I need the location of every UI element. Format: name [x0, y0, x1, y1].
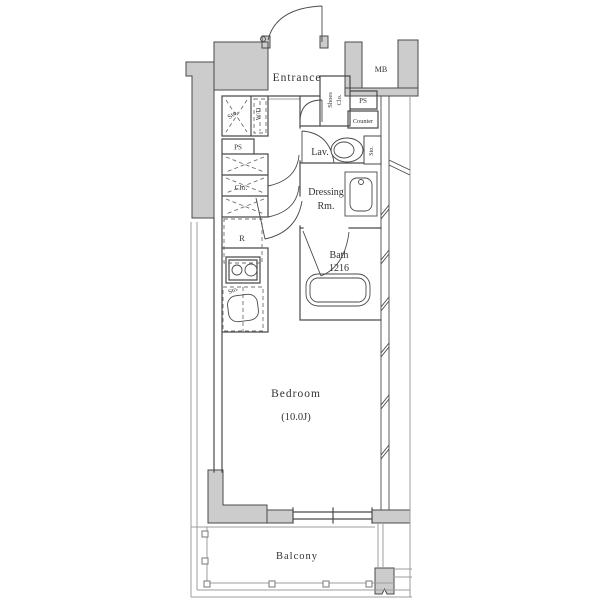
dressing-room-label-line1: Dressing	[308, 187, 344, 198]
shoes-closet-label-line2: Clo.	[336, 94, 343, 105]
bath-label: Bath	[330, 250, 349, 261]
meter-box-label: MB	[375, 65, 387, 74]
toilet-bowl	[331, 138, 363, 162]
east-wall-hatch-marks	[381, 160, 410, 459]
bedroom-size-label: (10.0J)	[281, 412, 311, 423]
stove-burner-left	[232, 265, 242, 275]
washbasin	[345, 172, 377, 216]
pipe-space-right-label: PS	[359, 97, 367, 105]
balcony-label: Balcony	[276, 551, 318, 562]
washbasin-faucet-icon	[359, 180, 364, 185]
washbasin-bowl	[350, 178, 372, 211]
bath-size-label: 1216	[329, 263, 349, 274]
structural-walls	[186, 36, 418, 594]
closet-label: Clo.	[235, 183, 248, 192]
bedroom-label: Bedroom	[271, 388, 321, 400]
refrigerator-label: R	[239, 233, 245, 243]
floor-plan-canvas: Entrance MB Sto. W/D PS Shoes Clo. PS Co…	[0, 0, 600, 600]
dressing-room-label-line2: Rm.	[318, 201, 335, 212]
pipe-space-left-label: PS	[234, 144, 242, 152]
shoes-closet-label-line1: Shoes	[327, 92, 334, 108]
washer-dryer-label: W/D	[255, 107, 262, 120]
bathtub	[306, 274, 370, 306]
storage-top-label: Sto.	[226, 108, 240, 121]
toilet-storage-label: Sto.	[369, 146, 375, 156]
stove	[232, 264, 257, 276]
counter-label: Counter	[353, 118, 374, 125]
floor-plan: Entrance MB Sto. W/D PS Shoes Clo. PS Co…	[0, 0, 600, 600]
stove-burner-right	[245, 264, 257, 276]
entrance-label: Entrance	[273, 72, 322, 84]
lavatory-label: Lav.	[311, 147, 328, 158]
bathtub-inner	[310, 278, 366, 302]
